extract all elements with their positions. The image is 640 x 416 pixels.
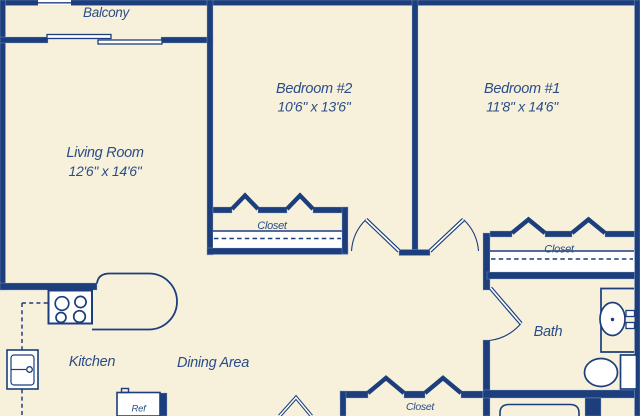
closet-wall — [258, 207, 287, 213]
door-swing-arc — [464, 220, 479, 252]
bedroom1-label: Bedroom #1 — [484, 81, 560, 97]
sliding-door-panel — [47, 35, 111, 39]
bath-west-wall — [483, 340, 490, 416]
door-leaf — [280, 398, 312, 416]
kitchen-label: Kitchen — [69, 354, 115, 370]
bedroom1-dimensions: 11'8" x 14'6" — [486, 99, 559, 115]
balcony-wall-left — [0, 37, 48, 43]
closet-wall — [213, 207, 232, 213]
floor-plan: Balcony Living Room 12'6" x 14'6" Bedroo… — [0, 0, 640, 416]
door-swing-arc — [352, 220, 367, 252]
tub-nook-wall — [585, 398, 601, 416]
bedroom2-door — [352, 220, 400, 252]
entry-wall-stub — [160, 393, 167, 416]
closet-wall — [545, 231, 572, 237]
refrigerator-label: Ref — [132, 404, 148, 415]
bifold-door — [572, 220, 605, 234]
dining-area-label: Dining Area — [177, 355, 249, 371]
closet-wall — [605, 231, 635, 237]
closet-wall — [404, 391, 425, 398]
bifold-door — [368, 378, 404, 393]
bath-door — [490, 288, 522, 341]
balcony-label: Balcony — [83, 5, 130, 20]
toilet-bowl — [585, 359, 618, 387]
bath-label: Bath — [534, 324, 563, 340]
kitchen-top-wall — [0, 283, 97, 290]
bedroom2-label: Bedroom #2 — [276, 81, 352, 97]
bedroom2-closet-label: Closet — [257, 220, 288, 232]
bathtub — [500, 405, 579, 416]
closet-wall — [340, 391, 346, 416]
right-wall — [635, 0, 640, 416]
left-wall — [0, 0, 6, 290]
refrigerator-handle — [122, 389, 129, 393]
closet-wall — [207, 248, 348, 255]
closet-interior — [213, 231, 342, 248]
kitchen-fixtures — [7, 274, 177, 416]
hall-closet-label: Closet — [406, 401, 435, 413]
livingroom-bedroom2-wall — [207, 0, 213, 255]
bifold-door — [512, 220, 545, 234]
toilet-tank — [621, 355, 637, 389]
bath-bottom-wall — [483, 390, 635, 398]
balcony-wall-right — [161, 37, 213, 43]
closet-wall — [483, 233, 490, 290]
closet-wall — [490, 231, 512, 237]
balcony-partition — [0, 35, 213, 45]
sliding-door-panel — [98, 40, 162, 44]
closet-wall — [487, 272, 635, 279]
bedroom1-bedroom2-wall — [412, 0, 418, 255]
drain-icon — [611, 318, 614, 321]
bedroom2-dimensions: 10'6" x 13'6" — [278, 99, 352, 115]
bedroom1-closet-label: Closet — [544, 244, 575, 256]
hall-t-wall — [399, 250, 430, 256]
entry-bifold-door — [280, 398, 312, 416]
living-room-label: Living Room — [66, 145, 144, 161]
bedroom1-door — [430, 220, 479, 252]
bifold-door — [287, 196, 313, 210]
faucet-icon — [626, 323, 635, 329]
bifold-door — [425, 378, 461, 393]
counter-peninsula — [92, 274, 177, 330]
closet-wall — [342, 207, 348, 254]
faucet-icon — [626, 311, 635, 317]
door-swing-arc — [490, 324, 522, 341]
bifold-door — [232, 196, 258, 210]
living-room-dimensions: 12'6" x 14'6" — [69, 163, 143, 179]
